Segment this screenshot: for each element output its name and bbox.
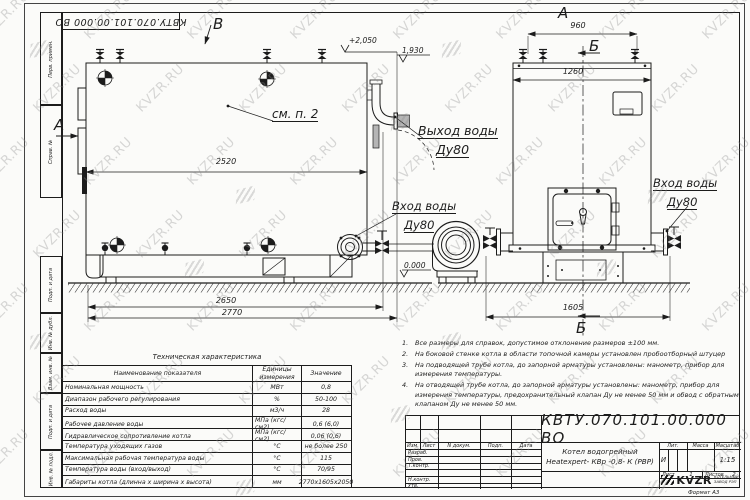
tech-table: Наименование показателя Единицы измерени… (62, 365, 352, 488)
label-masshtab: Масштаб (714, 442, 741, 449)
label-izm: Изм. (406, 442, 420, 449)
label-podp: Подп. (480, 442, 511, 449)
dim-2650: 2650 (206, 296, 246, 305)
dim-960: 960 (558, 21, 598, 30)
tech-table-row: Температура уходящих газов°Сне более 250 (63, 441, 351, 453)
label-lit: Лит. (659, 442, 687, 449)
value-scale: 1:15 (714, 449, 741, 471)
tech-table-header: Наименование показателя Единицы измерени… (63, 366, 351, 382)
tech-table-row: Максимальная рабочая температура воды°С1… (63, 453, 351, 465)
dim-2520: 2520 (206, 157, 246, 166)
elevation-value-outlet: 1,930 (402, 46, 423, 55)
tech-table-title: Техническая характеристика (62, 353, 352, 361)
callout-see-note: см. п. 2 (272, 107, 318, 122)
elevation-value-top: +2,050 (349, 36, 377, 45)
callout-water-inlet-main: Вход воды Ду80 (392, 195, 456, 233)
tech-table-row: Номинальная мощностьМВт0,8 (63, 382, 351, 394)
label-t-kontr: Т.контр. (408, 463, 438, 469)
ground-line (68, 283, 690, 293)
kvzr-logo-bars-icon (661, 475, 674, 485)
document-designation: КВТУ.070.101.00.000 ВО (541, 416, 741, 442)
boiler-front-view (483, 50, 681, 284)
label-n-dokum: N докум. (438, 442, 480, 449)
label-data: Дата (511, 442, 541, 449)
title-block: КВТУ.070.101.00.000 ВО Котел водогрейный… (405, 415, 740, 488)
drawing-sheet: Перв. примен. Справ. № Подп. и дата Инв.… (0, 0, 750, 500)
product-name: Котел водогрейный Heatexpert- КВр -0,8- … (541, 442, 659, 471)
boiler-side-view (78, 50, 367, 284)
kvzr-logo: KVZR КОТЕЛЬНЫЙЗАВОД РЭП (659, 471, 741, 489)
callout-water-outlet: Выход воды Ду80 (418, 120, 498, 158)
kvzr-logo-subtext: КОТЕЛЬНЫЙЗАВОД РЭП (714, 475, 739, 484)
col-header-value: Значение (302, 366, 350, 381)
callout-water-inlet-right: Вход воды Ду80 (653, 172, 717, 210)
label-razrab: Разраб. (408, 449, 438, 456)
label-utv: Утв. (408, 483, 438, 489)
label-massa: Масса (687, 442, 714, 449)
note-item: 1.Все размеры для справок, допустимое от… (402, 339, 740, 348)
tech-table-row: Рабочее давление водыМПа (кгс/см2)0,6 (6… (63, 417, 351, 429)
value-lit: И (659, 449, 668, 471)
tech-table-row: Температура воды (вход/выход)°С70/95 (63, 465, 351, 477)
note-item: 3.На подводящей трубе котла, до запорной… (402, 361, 740, 380)
tech-table-row: Расход водым3/ч28 (63, 406, 351, 418)
view-label-a-title: А (558, 4, 568, 22)
tech-table-row: Диапазон рабочего регулирования%50-100 (63, 394, 351, 406)
note-item: 4.На отводящей трубе котла, до запорной … (402, 381, 740, 409)
view-label-v-top: В (213, 15, 223, 33)
elevation-value-zero: 0.000 (404, 261, 425, 270)
notes-list: 1.Все размеры для справок, допустимое от… (402, 339, 740, 411)
tech-table-row: Габариты котла (длинна х ширина х высота… (63, 476, 351, 488)
col-header-units: Единицы измерения (253, 366, 302, 381)
kvzr-logo-text: KVZR (676, 474, 711, 487)
furnace-door (548, 188, 619, 250)
dim-1605: 1605 (553, 303, 593, 312)
dim-1260: 1260 (553, 67, 593, 76)
dim-2770: 2770 (212, 308, 252, 317)
format-note: Формат А3 (688, 490, 719, 496)
view-label-a-side: А (54, 116, 64, 134)
dimension-lines (86, 34, 670, 318)
tech-table-row: Гидравлическое сопротивление котлаМПа (к… (63, 429, 351, 441)
col-header-name: Наименование показателя (63, 366, 253, 381)
label-list: Лист (420, 442, 438, 449)
note-item: 2.На боковой стенке котла в области топо… (402, 350, 740, 359)
label-prov: Пров. (408, 456, 438, 463)
section-label-b-bottom: Б (576, 319, 586, 337)
section-label-b-top: Б (589, 37, 599, 55)
label-n-kontr: Н.контр. (408, 476, 438, 483)
